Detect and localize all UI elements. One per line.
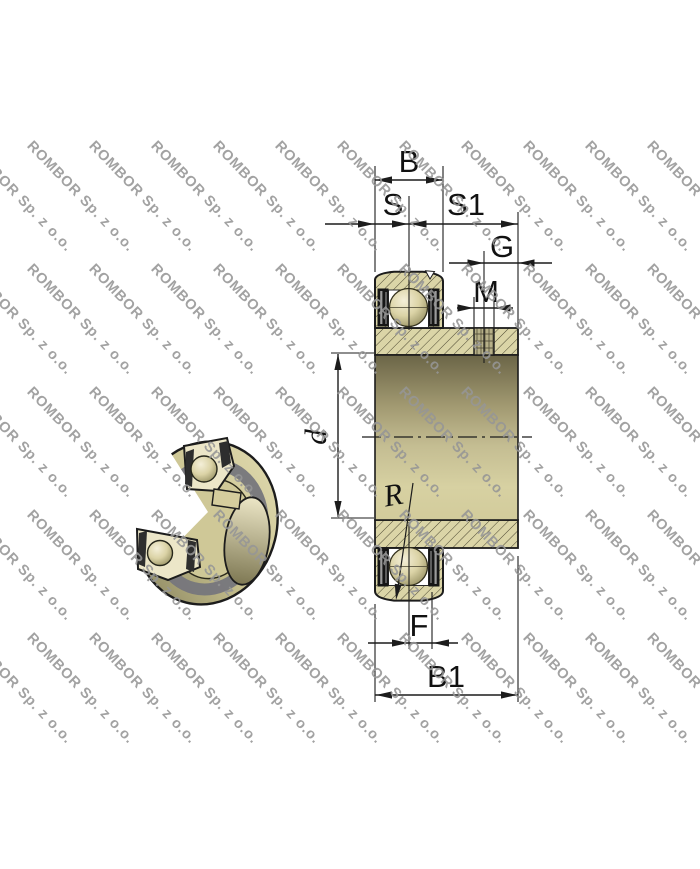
seal-lower-right: [429, 549, 440, 587]
bearing-3d-view: [62, 420, 295, 620]
bearing-section-view: [362, 271, 532, 601]
dim-label-G: G: [490, 229, 514, 264]
dim-label-M: M: [473, 274, 499, 309]
3d-sleeve-step: [212, 489, 241, 509]
3d-ball-upper: [191, 456, 217, 482]
dim-label-S: S: [383, 187, 404, 222]
dim-label-d: d: [298, 429, 333, 445]
bearing-technical-drawing: B S S1 G M d R F B1: [0, 0, 700, 869]
seal-upper-right: [429, 289, 440, 327]
dim-d: [331, 353, 374, 518]
dim-label-S1: S1: [447, 187, 485, 222]
dim-label-B: B: [399, 144, 420, 179]
3d-ball-lower: [148, 541, 173, 566]
inner-ring-top-flange: [375, 328, 518, 355]
seal-upper-left: [378, 289, 389, 327]
dim-label-B1: B1: [427, 659, 465, 694]
inner-ring-bottom-flange: [375, 520, 518, 548]
dim-label-F: F: [410, 608, 429, 643]
product-drawing-image: B S S1 G M d R F B1 ROMBOR Sp. z o.o.ROM…: [0, 0, 700, 869]
seal-lower-left: [378, 549, 389, 587]
